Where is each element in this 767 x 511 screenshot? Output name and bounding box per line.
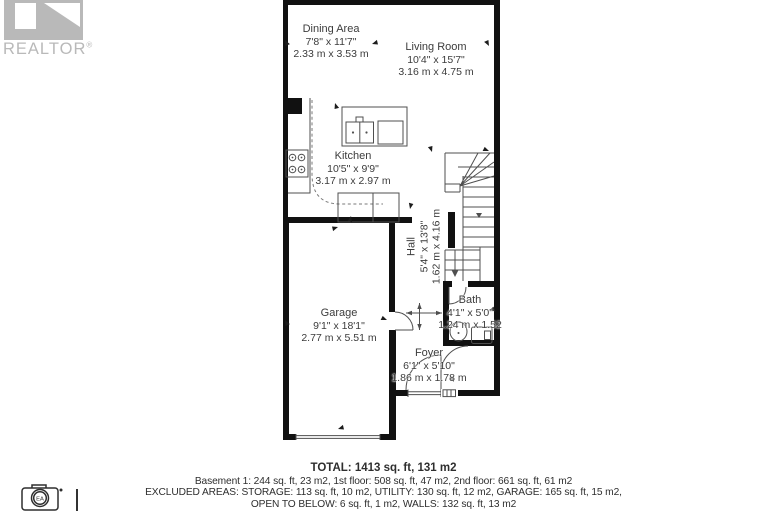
excluded-areas-line-2: OPEN TO BELOW: 6 sq. ft, 1 m2, WALLS: 13… (0, 499, 767, 511)
area-summary: TOTAL: 1413 sq. ft, 131 m2 Basement 1: 2… (0, 462, 767, 511)
bath-metric: 1.24 m x 1.52 (433, 319, 507, 331)
kitchen-name: Kitchen (288, 150, 418, 163)
living-name: Living Room (371, 41, 501, 54)
room-label-kitchen: Kitchen 10'5" x 9'9" 3.17 m x 2.97 m (288, 150, 418, 187)
excluded-areas-line-1: EXCLUDED AREAS: STORAGE: 113 sq. ft, 10 … (0, 487, 767, 499)
room-label-bath: Bath 4'1" x 5'0" 1.24 m x 1.52 (433, 294, 507, 331)
room-label-living: Living Room 10'4" x 15'7" 3.16 m x 4.75 … (371, 41, 501, 78)
staircase (445, 153, 494, 281)
camera-initials: EA (36, 496, 44, 502)
room-label-foyer: Foyer 6'1" x 5'10" 1.86 m x 1.78 m (364, 347, 494, 384)
hall-name: Hall (406, 192, 419, 302)
kitchen-imperial: 10'5" x 9'9" (288, 163, 418, 175)
foyer-metric: 1.86 m x 1.78 m (364, 372, 494, 384)
footer-divider (76, 489, 78, 511)
bath-imperial: 4'1" x 5'0" (433, 307, 507, 319)
bath-name: Bath (433, 294, 507, 307)
hall-metric: 1.62 m x 4.16 m (431, 192, 443, 302)
garage-name: Garage (274, 307, 404, 320)
living-metric: 3.16 m x 4.75 m (371, 66, 501, 78)
room-label-garage: Garage 9'1" x 18'1" 2.77 m x 5.51 m (274, 307, 404, 344)
camera-icon: EA (20, 481, 70, 511)
faucet-icon (356, 117, 363, 122)
room-label-hall: Hall 5'4" x 13'8" 1.62 m x 4.16 m (406, 192, 443, 302)
foyer-imperial: 6'1" x 5'10" (364, 360, 494, 372)
floor-breakdown-line: Basement 1: 244 sq. ft, 23 m2, 1st floor… (0, 476, 767, 488)
kitchen-island (342, 107, 407, 146)
dining-name: Dining Area (266, 23, 396, 36)
garage-metric: 2.77 m x 5.51 m (274, 332, 404, 344)
floorplan-page: REALTOR® (0, 0, 767, 511)
foyer-name: Foyer (364, 347, 494, 360)
total-area-line: TOTAL: 1413 sq. ft, 131 m2 (0, 462, 767, 476)
garage-imperial: 9'1" x 18'1" (274, 320, 404, 332)
hall-imperial: 5'4" x 13'8" (419, 192, 431, 302)
living-imperial: 10'4" x 15'7" (371, 54, 501, 66)
fridge-icon (338, 193, 399, 222)
garage-door (296, 434, 380, 440)
island-appliance (378, 121, 403, 144)
kitchen-metric: 3.17 m x 2.97 m (288, 175, 418, 187)
